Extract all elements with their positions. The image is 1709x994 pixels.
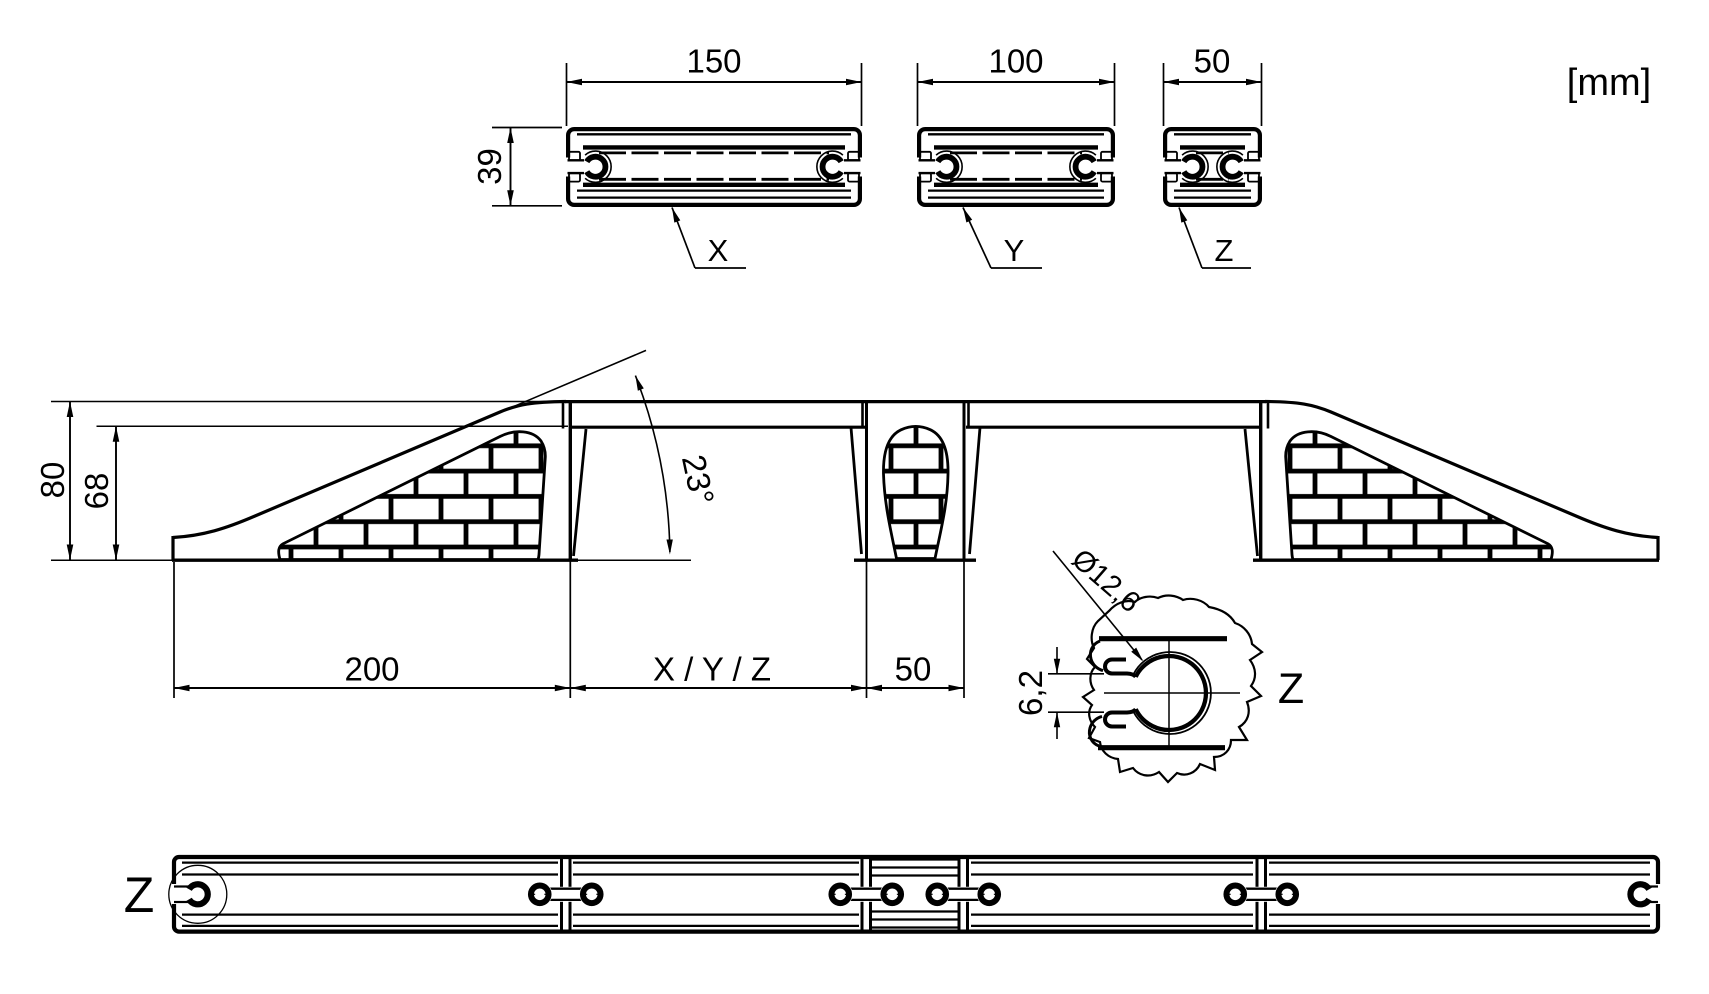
svg-text:100: 100 xyxy=(988,43,1043,80)
svg-text:6,2: 6,2 xyxy=(1012,670,1049,716)
svg-text:Y: Y xyxy=(1004,233,1025,268)
svg-text:[mm]: [mm] xyxy=(1567,62,1651,104)
svg-text:Z: Z xyxy=(1215,233,1234,268)
svg-text:Z: Z xyxy=(1278,665,1304,713)
svg-text:X / Y / Z: X / Y / Z xyxy=(653,651,771,688)
svg-text:150: 150 xyxy=(686,43,741,80)
svg-text:Z: Z xyxy=(124,867,155,923)
svg-text:X: X xyxy=(708,233,729,268)
svg-text:39: 39 xyxy=(471,148,508,185)
svg-text:200: 200 xyxy=(344,651,399,688)
svg-text:68: 68 xyxy=(78,473,115,510)
svg-text:50: 50 xyxy=(895,651,932,688)
svg-text:80: 80 xyxy=(34,462,71,499)
svg-text:50: 50 xyxy=(1194,43,1231,80)
